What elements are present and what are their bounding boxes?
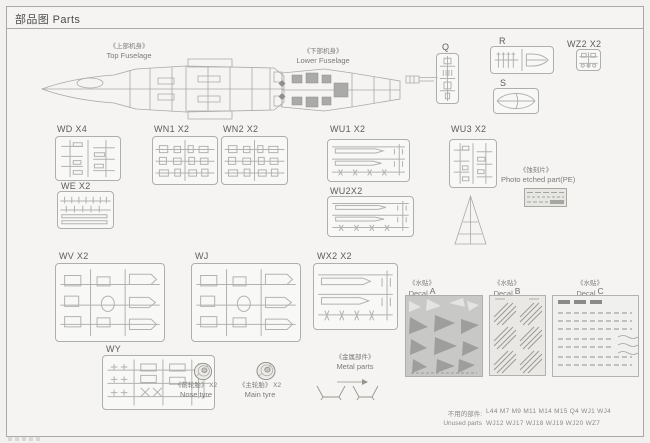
q-part-callout-drawing bbox=[404, 71, 440, 87]
nose-tyre-caption: 《前轮胎》 X2 Nose tyre bbox=[166, 382, 226, 400]
main-tyre-caption-en: Main tyre bbox=[230, 390, 290, 399]
sprue-wj bbox=[191, 263, 301, 342]
sprue-wu1-label: WU1 X2 bbox=[330, 124, 365, 134]
sprue-wz2-label: WZ2 X2 bbox=[567, 39, 601, 49]
sprue-wy-label: WY bbox=[106, 344, 121, 354]
sprue-s bbox=[493, 88, 539, 114]
metal-parts-caption: 《金属部件》 Metal parts bbox=[322, 354, 388, 372]
unused-parts-codes-2: WJ12 WJ17 WJ18 WJ19 WJ20 WZ7 bbox=[486, 420, 600, 427]
sprue-wu2-label: WU2X2 bbox=[330, 186, 363, 196]
page-title: 部品图 Parts bbox=[15, 11, 80, 27]
decal-b-caption-zh: 《水贴》 bbox=[477, 280, 537, 288]
nose-tyre-caption-zh: 《前轮胎》 X2 bbox=[166, 382, 226, 390]
sprue-wv bbox=[55, 263, 165, 342]
metal-parts-drawing bbox=[316, 384, 382, 401]
sprue-wv-label: WV X2 bbox=[59, 251, 89, 261]
top-fuselage-drawing bbox=[38, 56, 293, 122]
main-tyre-caption-zh: 《主轮胎》 X2 bbox=[230, 382, 290, 390]
unused-parts-row-2: Unused parts WJ12 WJ17 WJ18 WJ19 WJ20 WZ… bbox=[434, 420, 610, 427]
sprue-we-label: WE X2 bbox=[61, 181, 91, 191]
sprue-wu2 bbox=[327, 196, 414, 237]
unused-parts-label-zh: 不用的部件: bbox=[434, 408, 482, 418]
print-smudge bbox=[8, 436, 40, 441]
sprue-wx2-label: WX2 X2 bbox=[317, 251, 352, 261]
header-divider bbox=[6, 28, 644, 29]
sprue-wn2-label: WN2 X2 bbox=[223, 124, 258, 134]
sprue-s-label: S bbox=[500, 78, 506, 88]
antenna-part-drawing bbox=[452, 194, 489, 247]
sprue-q bbox=[436, 53, 459, 104]
sprue-q-label: Q bbox=[442, 42, 449, 52]
sprue-wu3 bbox=[449, 139, 497, 188]
unused-parts-row-1: 不用的部件: L44 M7 M9 M11 M14 M15 Q4 WJ1 WJ4 bbox=[434, 408, 610, 418]
decal-sheet-b bbox=[489, 295, 546, 376]
sprue-wn2 bbox=[221, 136, 288, 185]
parts-diagram-page: 部品图 Parts 《上部机身》 Top Fuselage 《下部机身》 Low… bbox=[0, 0, 650, 443]
sprue-wu1 bbox=[327, 139, 410, 182]
sprue-r bbox=[490, 46, 554, 74]
sprue-wn1 bbox=[152, 136, 218, 185]
sprue-we bbox=[57, 191, 114, 229]
sprue-wj-label: WJ bbox=[195, 251, 209, 261]
sprue-wu3-label: WU3 X2 bbox=[451, 124, 486, 134]
sprue-wx2 bbox=[313, 263, 398, 330]
photo-etched-caption-zh: 《蚀刻片》 bbox=[501, 167, 571, 175]
decal-a-caption-zh: 《水贴》 bbox=[392, 280, 452, 288]
unused-parts-codes-1: L44 M7 M9 M11 M14 M15 Q4 WJ1 WJ4 bbox=[486, 408, 611, 415]
main-tyre-caption: 《主轮胎》 X2 Main tyre bbox=[230, 382, 290, 400]
lower-fuselage-caption-zh: 《下部机身》 bbox=[288, 48, 358, 56]
sprue-wd-label: WD X4 bbox=[57, 124, 87, 134]
decal-sheet-c bbox=[552, 295, 639, 377]
photo-etched-fret bbox=[524, 188, 567, 207]
decal-sheet-a bbox=[405, 295, 483, 377]
sprue-wn1-label: WN1 X2 bbox=[154, 124, 189, 134]
metal-parts-caption-zh: 《金属部件》 bbox=[322, 354, 388, 362]
photo-etched-caption-en: Photo etched part(PE) bbox=[501, 175, 571, 184]
sprue-r-label: R bbox=[499, 36, 506, 46]
unused-parts-note: 不用的部件: L44 M7 M9 M11 M14 M15 Q4 WJ1 WJ4 … bbox=[434, 408, 610, 429]
decal-c-caption-zh: 《水贴》 bbox=[560, 280, 620, 288]
main-tyre-drawing bbox=[254, 360, 278, 382]
sprue-wz2 bbox=[576, 49, 601, 71]
photo-etched-caption: 《蚀刻片》 Photo etched part(PE) bbox=[501, 167, 571, 185]
top-fuselage-caption-zh: 《上部机身》 bbox=[94, 43, 164, 51]
metal-parts-caption-en: Metal parts bbox=[322, 362, 388, 371]
unused-parts-label-en: Unused parts bbox=[434, 420, 482, 427]
nose-tyre-caption-en: Nose tyre bbox=[166, 390, 226, 399]
nose-tyre-drawing bbox=[192, 361, 214, 382]
lower-fuselage-drawing bbox=[278, 61, 404, 119]
sprue-wd bbox=[55, 136, 121, 181]
